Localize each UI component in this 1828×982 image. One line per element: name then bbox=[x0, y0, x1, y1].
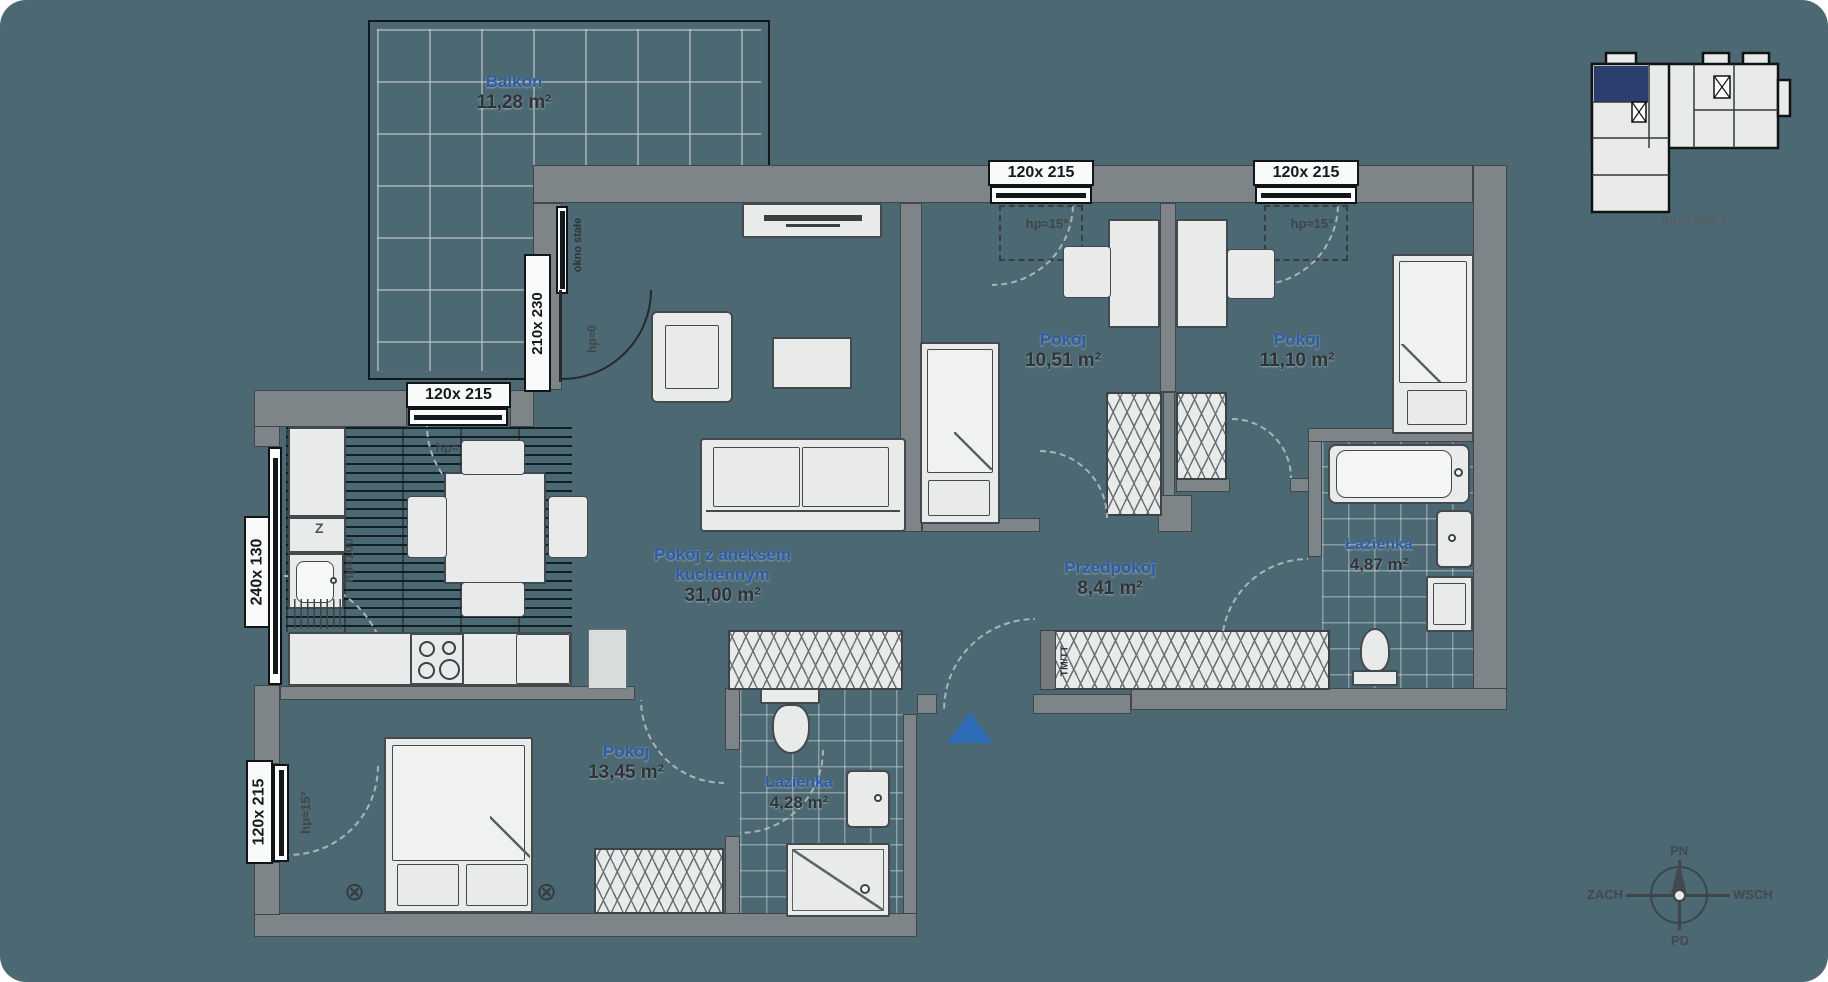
compass-west-label: ZACH bbox=[1575, 887, 1623, 902]
door-arc-bedroom-b bbox=[1232, 418, 1292, 478]
compass-south-label: PD bbox=[1663, 933, 1697, 948]
bathroom-b-name: Łazienka bbox=[744, 774, 854, 793]
bed-b-drawer bbox=[1407, 390, 1467, 425]
bed-pillow bbox=[466, 864, 528, 906]
bathroom-a-area: 4,87 m² bbox=[1324, 555, 1434, 575]
bedroom-c-area: 13,45 m² bbox=[570, 762, 682, 784]
bathroom-b-area: 4,28 m² bbox=[744, 793, 854, 813]
hallway-name: Przedpokój bbox=[1046, 558, 1174, 578]
window-glazing-kitchen-top bbox=[408, 408, 508, 426]
wall-hall-bottom bbox=[1033, 694, 1131, 714]
radiator-symbol: ⊗ bbox=[344, 880, 374, 908]
sofa-cushion bbox=[713, 447, 800, 507]
tv-stand bbox=[786, 224, 840, 227]
bedroom-a-name: Pokój bbox=[1008, 330, 1118, 350]
compass-rose: PN WSCH PD ZACH bbox=[1570, 838, 1800, 958]
building-locator-map bbox=[1588, 38, 1828, 223]
bedroom-c-name: Pokój bbox=[570, 742, 682, 762]
hallway-label: Przedpokój 8,41 m² bbox=[1046, 558, 1174, 608]
window-label-kitchen-left: 240x 130 bbox=[244, 516, 271, 628]
building-caption: BUDYNEK E bbox=[1630, 216, 1760, 230]
bed-double-fold bbox=[490, 816, 530, 858]
wall-end-block bbox=[588, 629, 627, 689]
kitchen-cabinet-column bbox=[288, 427, 346, 517]
corridor-closet bbox=[728, 630, 903, 690]
kitchen-stove bbox=[410, 633, 464, 685]
window-label-bedroom-c: 120x 215 bbox=[246, 760, 273, 864]
window-label-kitchen-top: 120x 215 bbox=[406, 382, 511, 408]
wall-kitchen-top-right bbox=[510, 390, 534, 427]
washing-machine-inner bbox=[1433, 583, 1466, 625]
shower-drain bbox=[860, 884, 870, 894]
wardrobe-bedroom-c bbox=[594, 848, 724, 914]
stove-burner bbox=[439, 659, 460, 680]
entrance-marker bbox=[947, 712, 993, 743]
wall-hall-bottom-left-stub bbox=[917, 694, 937, 714]
desk-b bbox=[1176, 219, 1228, 328]
bedroom-c-label: Pokój 13,45 m² bbox=[570, 742, 682, 792]
bedroom-b-name: Pokój bbox=[1242, 330, 1352, 350]
balcony-name: Balkon bbox=[433, 72, 595, 92]
compass-east-label: WSCH bbox=[1733, 887, 1781, 902]
bathroom-b-label: Łazienka 4,28 m² bbox=[744, 774, 854, 822]
desk-chair-a bbox=[1063, 246, 1111, 298]
hallway-area: 8,41 m² bbox=[1046, 578, 1174, 600]
toilet-a-bowl bbox=[1360, 628, 1390, 672]
desk-chair-b bbox=[1227, 249, 1275, 299]
kitchen-faucet bbox=[330, 577, 337, 584]
wall-right bbox=[1473, 165, 1507, 710]
stove-burner bbox=[419, 641, 435, 657]
window-size-text: 120x 215 bbox=[1008, 164, 1075, 182]
wall-bedroom-b-bottom-left bbox=[1176, 478, 1230, 492]
bedroom-b-label: Pokój 11,10 m² bbox=[1242, 330, 1352, 380]
sink-b-faucet bbox=[874, 794, 882, 802]
door-arc-bedroom-a bbox=[1040, 450, 1108, 518]
kitchen-sink-bowl bbox=[296, 561, 334, 603]
sofa-cushion bbox=[802, 447, 889, 507]
window-size-text: 210x 230 bbox=[529, 292, 546, 355]
coffee-table bbox=[772, 337, 852, 389]
balcony-door-arc bbox=[562, 290, 652, 380]
toilet-b-tank bbox=[760, 688, 820, 704]
bathtub-faucet bbox=[1454, 468, 1463, 477]
wall-bedroom-b-bottom-right bbox=[1290, 478, 1310, 492]
bathtub-inner bbox=[1336, 450, 1452, 498]
sill-note-balcony-door: hp≈0 bbox=[584, 316, 599, 362]
sill-note-bedroom-c: hp≈15° bbox=[297, 778, 314, 846]
tv-screen bbox=[764, 215, 862, 221]
dining-chair bbox=[407, 496, 447, 558]
dining-chair bbox=[461, 440, 525, 475]
sofa-back bbox=[706, 510, 900, 526]
window-label-balcony-door: 210x 230 bbox=[524, 254, 551, 392]
toilet-a-tank bbox=[1352, 670, 1398, 686]
desk-a bbox=[1108, 219, 1160, 328]
window-size-text: 120x 215 bbox=[1273, 164, 1340, 182]
wall-rooms-partition bbox=[1160, 203, 1176, 392]
window-glazing-bedroom-b bbox=[1255, 186, 1357, 204]
window-glazing-kitchen-left bbox=[268, 447, 282, 685]
window-glazing-bedroom-a bbox=[990, 186, 1092, 204]
window-glazing-bedroom-c bbox=[273, 764, 289, 862]
bathroom-a-label: Łazienka 4,87 m² bbox=[1324, 536, 1434, 582]
balcony-door-fixed-glazing bbox=[556, 206, 568, 294]
fixed-window-text: okno stałe bbox=[572, 218, 584, 272]
highlighted-unit bbox=[1594, 66, 1648, 102]
kitchen-fridge bbox=[516, 634, 570, 684]
hall-wardrobe-cap bbox=[1040, 630, 1056, 690]
kitchen-radiator bbox=[294, 599, 344, 629]
living-area: 31,00 m² bbox=[640, 585, 805, 607]
bedroom-b-area: 11,10 m² bbox=[1242, 350, 1352, 372]
wall-partition-block bbox=[1158, 495, 1192, 532]
wall-kitchen-top-left bbox=[254, 390, 407, 427]
stove-burner bbox=[442, 641, 456, 655]
window-label-bedroom-b: 120x 215 bbox=[1253, 160, 1359, 186]
bed-pillow bbox=[397, 864, 459, 906]
wall-partition-lower bbox=[1163, 392, 1175, 497]
window-size-text: 120x 215 bbox=[251, 779, 269, 846]
door-arc-entrance bbox=[943, 618, 1035, 710]
fixed-window-note: okno stałe bbox=[570, 204, 586, 286]
sill-note-bedroom-a: hp≈15° bbox=[1004, 216, 1090, 232]
balcony-area: 11,28 m² bbox=[433, 92, 595, 114]
hall-wardrobe-label: TM/TT bbox=[1056, 636, 1072, 686]
dishwasher-label: Z bbox=[315, 520, 335, 540]
sink-a-faucet bbox=[1448, 534, 1456, 542]
wall-bottom-right bbox=[1131, 688, 1507, 710]
bed-a-blanket-fold bbox=[954, 432, 992, 470]
window-size-text: 120x 215 bbox=[425, 386, 492, 404]
armchair-seat bbox=[665, 325, 719, 389]
floor-plan: Balkon 11,28 m² 120x 215 hp≈15° 120x 215… bbox=[0, 0, 1828, 982]
sill-note-bedroom-b: hp≈15° bbox=[1269, 216, 1355, 232]
shower-diagonal bbox=[792, 849, 884, 911]
bedroom-a-area: 10,51 m² bbox=[1008, 350, 1118, 372]
sill-note-text: hp≈0 bbox=[585, 325, 599, 353]
bedroom-a-label: Pokój 10,51 m² bbox=[1008, 330, 1118, 380]
living-name-1: Pokój z aneksem bbox=[640, 545, 805, 565]
stove-burner bbox=[418, 662, 435, 679]
door-arc-bathroom-a bbox=[1221, 558, 1308, 645]
wall-bedroom-c-top bbox=[280, 686, 635, 700]
wardrobe-bedroom-a bbox=[1106, 392, 1162, 516]
compass-hub bbox=[1673, 889, 1686, 902]
wall-bath-b-right bbox=[903, 714, 917, 935]
wall-bath-b-left-upper bbox=[725, 688, 740, 750]
wardrobe-bedroom-b bbox=[1176, 392, 1227, 480]
sill-note-text: hp≈15° bbox=[298, 791, 313, 834]
dining-chair bbox=[548, 496, 588, 558]
bathroom-a-name: Łazienka bbox=[1324, 536, 1434, 555]
wall-bath-a-left-upper bbox=[1308, 437, 1322, 557]
bed-b-blanket-fold bbox=[1401, 344, 1441, 382]
wall-left-mid bbox=[254, 685, 280, 764]
dining-chair bbox=[461, 582, 525, 617]
balcony-label: Balkon 11,28 m² bbox=[433, 72, 595, 122]
window-size-text: 240x 130 bbox=[249, 539, 267, 606]
radiator-symbol: ⊗ bbox=[536, 880, 566, 908]
wardrobe-label-text: TM/TT bbox=[1058, 646, 1070, 677]
wall-left-lower bbox=[254, 862, 280, 915]
window-label-bedroom-a: 120x 215 bbox=[988, 160, 1094, 186]
bed-a-drawer bbox=[928, 480, 990, 516]
living-room-label: Pokój z aneksem kuchennym 31,00 m² bbox=[640, 545, 805, 621]
living-name-2: kuchennym bbox=[640, 565, 805, 585]
toilet-b-bowl bbox=[772, 704, 810, 754]
dining-table bbox=[444, 472, 546, 584]
compass-north-label: PN bbox=[1662, 843, 1696, 858]
